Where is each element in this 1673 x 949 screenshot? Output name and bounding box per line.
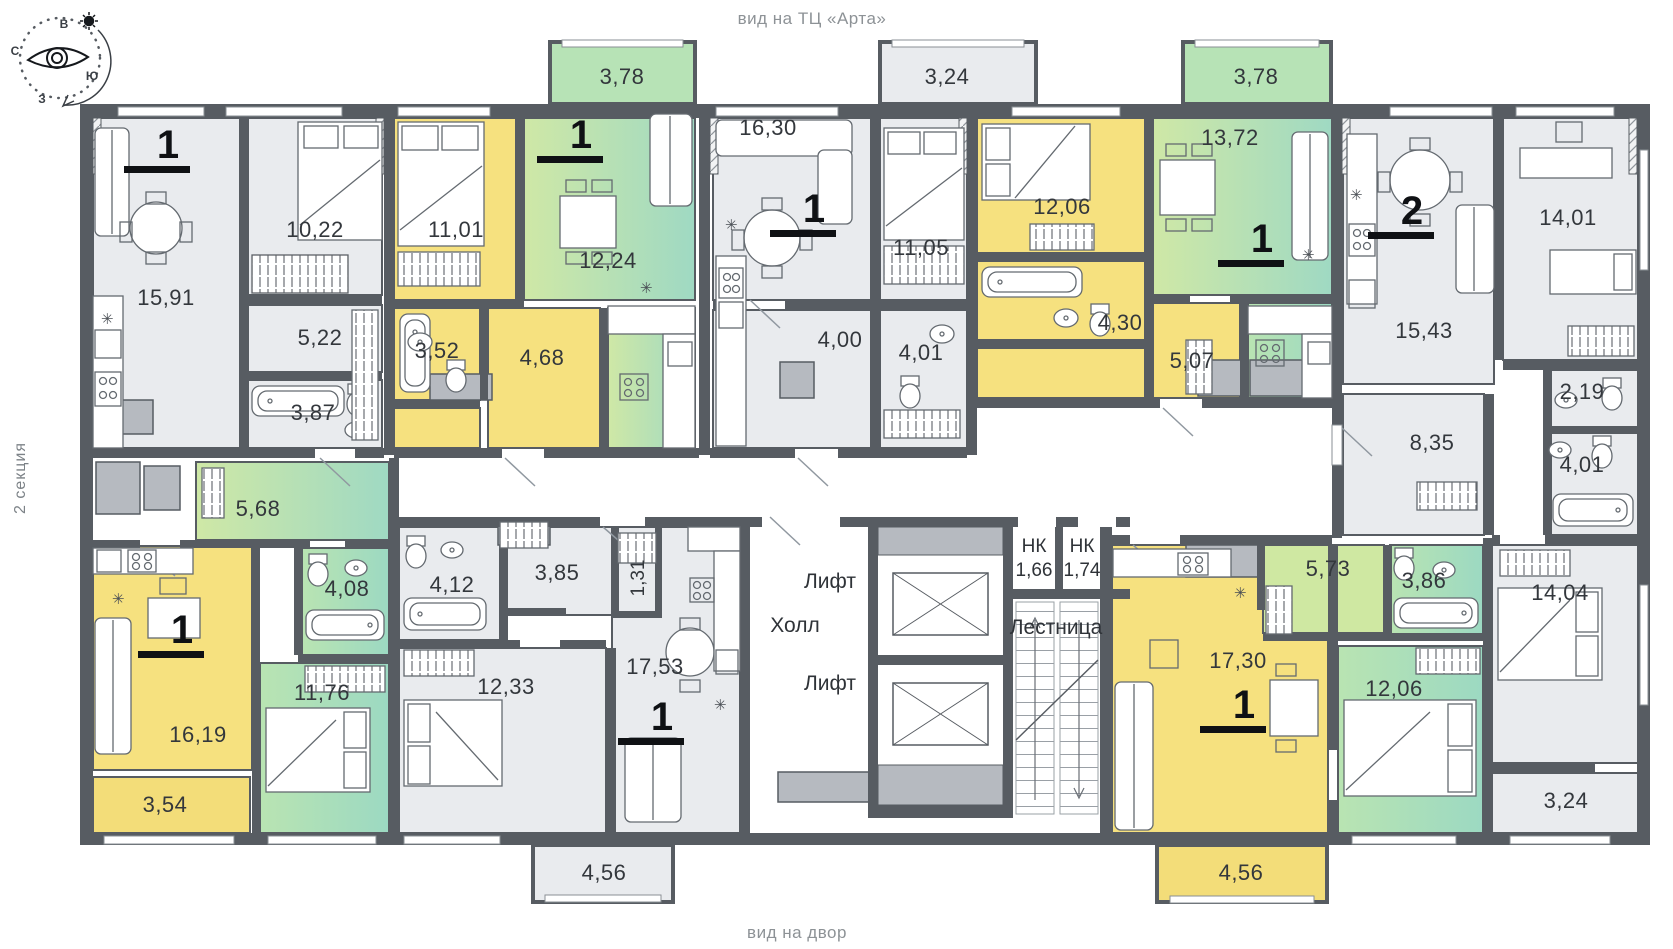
bed-icon: [266, 708, 370, 792]
apt6-bath-area: 4,08: [325, 576, 370, 601]
apt7-type: 1: [651, 695, 673, 739]
nk1-area: 1,66: [1016, 560, 1053, 581]
apt7-wardrobe-area: 1,31: [628, 560, 649, 597]
room-apt6-hall: [196, 462, 389, 540]
apt1-type: 1: [157, 123, 179, 167]
apt7-hall-area: 3,85: [535, 560, 580, 585]
apt6-balcony-area: 3,54: [143, 792, 188, 817]
floorplan-svg: ✳ ✳ ✳ ✳ ✳ ✳ ✳ ✳ 1 15,91 10,22 5,22 3,87: [0, 0, 1673, 949]
wardrobe-icon: [1030, 224, 1094, 250]
apt1-bath-area: 3,87: [291, 400, 336, 425]
sink-icon: [345, 560, 367, 576]
apt4-bedroom-area: 12,06: [1033, 194, 1091, 219]
apt4-living-area: 13,72: [1201, 125, 1259, 150]
wardrobe-icon: [202, 468, 224, 518]
apt5-balcony-area: 3,24: [1544, 788, 1589, 813]
bed-icon: [884, 128, 964, 240]
stairs-label: Лестница: [1010, 616, 1103, 639]
sofa-icon: [1292, 132, 1328, 260]
apt4-type: 1: [1251, 217, 1273, 261]
apt7-bedroom-area: 12,33: [477, 674, 535, 699]
apt1-type-underline: [124, 166, 190, 173]
apt4-hall-area: 5,07: [1170, 348, 1215, 373]
sofa-icon: [95, 128, 129, 236]
bathtub-icon: [404, 598, 486, 630]
apt8-living-area: 17,30: [1209, 648, 1267, 673]
room-apt2-hall: [488, 308, 600, 448]
room-apt2-entry: [394, 408, 480, 448]
nk1-label: НК: [1022, 536, 1047, 557]
toilet-icon: [406, 536, 426, 568]
apt8-type: 1: [1233, 683, 1255, 727]
apt2-bedroom-area: 11,01: [428, 217, 484, 242]
apt4-type-underline: [1218, 260, 1284, 267]
apt3-bath-area: 4,01: [899, 340, 944, 365]
wardrobe-icon: [1266, 586, 1292, 634]
apt4-bath-area: 4,30: [1098, 310, 1143, 335]
apt7-type-underline: [618, 738, 684, 745]
hall-label: Холл: [770, 614, 820, 637]
apt6-hall-area: 5,68: [236, 496, 281, 521]
bed-icon: [1550, 250, 1636, 294]
apt2-balcony-area: 3,78: [600, 64, 645, 89]
sofa-icon: [650, 114, 692, 206]
apt5-bedroom2-area: 14,04: [1531, 580, 1589, 605]
lift-label: Лифт: [804, 672, 856, 695]
apt6-type-underline: [138, 651, 204, 658]
snowflake-icon: ✳: [1302, 247, 1315, 264]
sun-icon: [80, 12, 98, 30]
bathtub-icon: [1394, 598, 1478, 628]
apt5-bath-area: 4,01: [1560, 452, 1605, 477]
apt2-type: 1: [570, 113, 592, 157]
snowflake-icon: ✳: [640, 280, 653, 297]
view-top-caption: вид на ТЦ «Арта»: [738, 9, 887, 28]
rotation-arrow-icon: [63, 30, 111, 106]
eye-icon: [28, 48, 88, 68]
apt3-hall-area: 4,00: [818, 327, 863, 352]
apt5-living-area: 15,43: [1395, 318, 1453, 343]
kitchen-counter: [716, 256, 746, 446]
kitchen-counter: [93, 548, 193, 574]
bed-icon: [982, 124, 1090, 200]
apt5-type: 2: [1401, 189, 1423, 233]
room-apt5-hall: [1343, 394, 1484, 535]
apt6-living-area: 16,19: [169, 722, 227, 747]
sofa-icon: [625, 738, 681, 822]
apt7-living-area: 17,53: [626, 654, 684, 679]
view-bottom-caption: вид на двор: [747, 923, 847, 942]
compass-west: З: [38, 92, 46, 106]
wardrobe-icon: [618, 533, 656, 563]
apt3-living-area: 16,30: [739, 115, 797, 140]
snowflake-icon: ✳: [725, 217, 738, 234]
snowflake-icon: ✳: [1350, 187, 1363, 204]
wardrobe-icon: [252, 255, 348, 293]
apt2-hall-area: 4,68: [520, 345, 565, 370]
bed-icon: [404, 700, 502, 786]
floorplan-page: ✳ ✳ ✳ ✳ ✳ ✳ ✳ ✳ 1 15,91 10,22 5,22 3,87: [0, 0, 1673, 949]
apt4-balcony-area: 3,78: [1234, 64, 1279, 89]
wardrobe-icon: [404, 650, 474, 676]
snowflake-icon: ✳: [112, 591, 125, 608]
apt8-type-underline: [1200, 726, 1266, 733]
bed-icon: [1344, 700, 1476, 796]
compass-east: В: [60, 17, 69, 31]
wardrobe-icon: [500, 522, 548, 548]
apt1-living-area: 15,91: [137, 285, 195, 310]
bathtub-icon: [982, 267, 1082, 297]
section-label: 2 секция: [12, 442, 29, 514]
compass-north: С: [11, 44, 20, 58]
snowflake-icon: ✳: [1234, 585, 1247, 602]
apt3-bedroom-area: 11,05: [893, 235, 949, 260]
apt5-bedroom1-area: 14,01: [1539, 205, 1597, 230]
apt8-balcony-area: 4,56: [1219, 860, 1264, 885]
sofa-icon: [1115, 682, 1153, 830]
apt2-living-area: 12,24: [579, 248, 637, 273]
sink-icon: [1054, 309, 1078, 327]
wardrobe-icon: [352, 310, 378, 440]
sofa-icon: [1456, 205, 1494, 293]
apt5-hall-area: 8,35: [1410, 430, 1455, 455]
apt3-type-underline: [770, 230, 836, 237]
wardrobe-icon: [1568, 326, 1634, 356]
bathtub-icon: [1553, 494, 1633, 526]
sink-icon: [441, 542, 463, 558]
toilet-icon: [1602, 378, 1622, 410]
nk2-area: 1,74: [1064, 560, 1101, 581]
apt2-bath-area: 3,52: [415, 338, 460, 363]
sofa-icon: [95, 618, 131, 754]
wardrobe-icon: [1417, 482, 1477, 510]
apt5-type-underline: [1368, 232, 1434, 239]
apt8-bath-area: 3,86: [1402, 568, 1447, 593]
wardrobe-icon: [884, 410, 960, 438]
apt5-wc-area: 2,19: [1560, 379, 1605, 404]
bathtub-icon: [306, 610, 384, 640]
wardrobe-icon: [1416, 648, 1480, 674]
kitchen-counter: [1347, 134, 1377, 308]
nk2-label: НК: [1070, 536, 1095, 557]
apt3-balcony-area: 3,24: [925, 64, 970, 89]
apt7-balcony-area: 4,56: [582, 860, 627, 885]
wardrobe-icon: [398, 252, 480, 286]
compass: В С Ю З: [11, 12, 111, 106]
toilet-icon: [900, 376, 920, 408]
snowflake-icon: ✳: [714, 697, 727, 714]
apt6-bedroom-area: 11,76: [294, 680, 350, 705]
elevator-icon: [893, 683, 988, 745]
apt2-type-underline: [537, 156, 603, 163]
apt8-hall-area: 5,73: [1306, 556, 1351, 581]
snowflake-icon: ✳: [101, 311, 114, 328]
apt3-type: 1: [803, 187, 825, 231]
apt6-type: 1: [171, 608, 193, 652]
room-apt4-entry: [977, 348, 1145, 398]
toilet-icon: [446, 360, 466, 392]
apt1-bedroom-area: 10,22: [286, 217, 344, 242]
elevator-icon: [893, 573, 988, 635]
apt7-bath-area: 4,12: [430, 572, 475, 597]
compass-south: Ю: [86, 69, 98, 83]
lift-label: Лифт: [804, 570, 856, 593]
apt8-bedroom-area: 12,06: [1365, 676, 1423, 701]
apt1-hall-area: 5,22: [298, 325, 343, 350]
wardrobe-icon: [1500, 550, 1570, 576]
